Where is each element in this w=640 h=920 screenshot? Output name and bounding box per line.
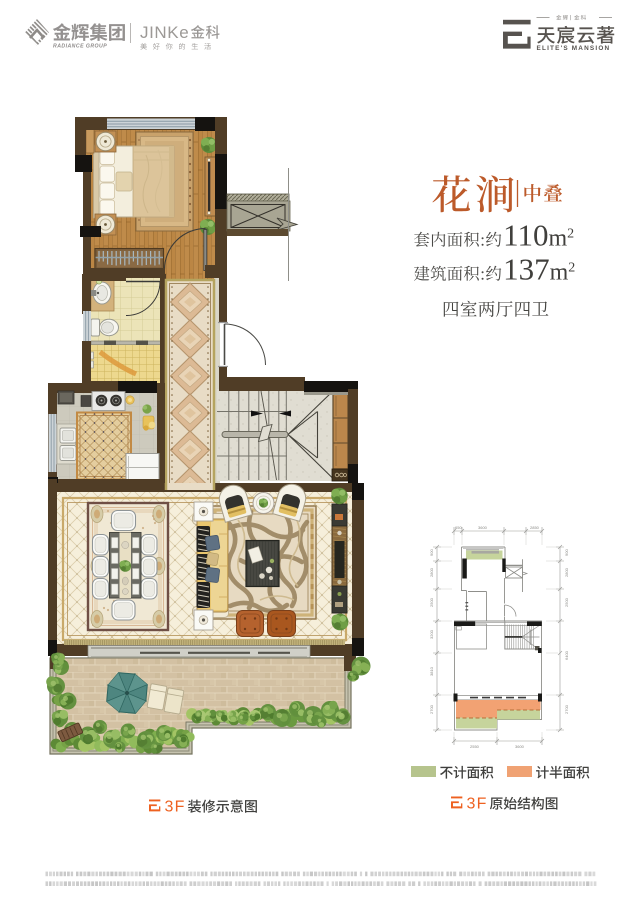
- svg-text:650: 650: [455, 525, 462, 530]
- svg-text:2850: 2850: [530, 525, 540, 530]
- svg-text:6400: 6400: [564, 650, 569, 660]
- svg-text:2700: 2700: [429, 704, 434, 714]
- svg-text:110m2: 110m2: [503, 218, 574, 253]
- svg-text:2800: 2800: [429, 567, 434, 577]
- svg-text:2500: 2500: [564, 597, 569, 607]
- svg-text:900: 900: [564, 549, 569, 556]
- svg-text:RADIANCE GROUP: RADIANCE GROUP: [53, 44, 107, 50]
- svg-text:2800: 2800: [564, 567, 569, 577]
- svg-text:3810: 3810: [429, 666, 434, 676]
- svg-text:3600: 3600: [515, 744, 525, 749]
- svg-text:3F: 3F: [165, 799, 186, 816]
- svg-text:137m2: 137m2: [503, 252, 575, 287]
- svg-text:3600: 3600: [478, 525, 488, 530]
- svg-text:3200: 3200: [429, 629, 434, 639]
- svg-text:2550: 2550: [470, 744, 480, 749]
- svg-text:2700: 2700: [564, 704, 569, 714]
- svg-text:JINKe: JINKe: [140, 23, 189, 42]
- svg-text:900: 900: [429, 549, 434, 556]
- svg-text:3F: 3F: [467, 796, 488, 813]
- svg-text:ELITE'S MANSION: ELITE'S MANSION: [537, 45, 611, 52]
- svg-text:2500: 2500: [429, 597, 434, 607]
